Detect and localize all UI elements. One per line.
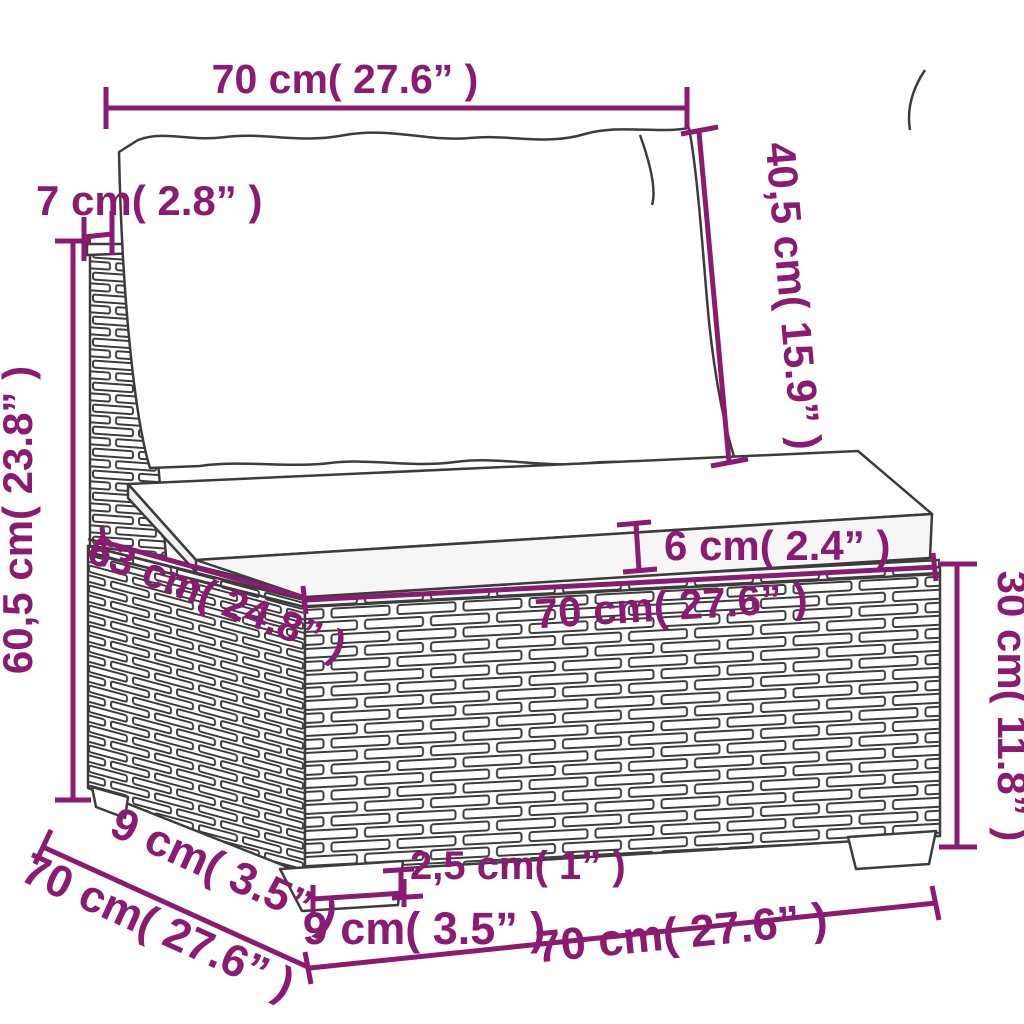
dimension-line xyxy=(636,524,639,570)
dimension-label: 2,5 cm( 1” ) xyxy=(410,844,626,888)
dimension-tick xyxy=(617,522,651,525)
dimension-label: 7 cm( 2.8” ) xyxy=(36,177,262,224)
leg-front-right xyxy=(848,831,936,869)
dimension-tick xyxy=(932,886,939,920)
dimension-label: 60,5 cm( 23.8” ) xyxy=(0,366,41,674)
dim-leg-height: 2,5 cm( 1” ) xyxy=(383,844,626,899)
dim-total-height: 60,5 cm( 23.8” ) xyxy=(0,241,91,800)
sofa-dimension-illustration: 70 cm( 27.6” ) 40,5 cm( 15.9” ) 7 cm( 2.… xyxy=(0,0,1024,1024)
dimension-label: 40,5 cm( 15.9” ) xyxy=(757,140,831,451)
dimension-tick xyxy=(392,896,423,898)
dimension-diagram: 70 cm( 27.6” ) 40,5 cm( 15.9” ) 7 cm( 2.… xyxy=(0,0,1024,1024)
dimension-tick xyxy=(303,586,306,614)
dimension-label: 70 cm( 27.6” ) xyxy=(533,893,829,973)
dimension-tick xyxy=(623,569,657,572)
dim-base-height: 30 cm( 11.8” ) xyxy=(938,564,1024,847)
dim-back-width: 70 cm( 27.6” ) xyxy=(106,56,687,129)
dimension-label: 6 cm( 2.4” ) xyxy=(664,522,890,569)
dimension-label: 30 cm( 11.8” ) xyxy=(989,571,1024,842)
dimension-label: 70 cm( 27.6” ) xyxy=(212,56,479,102)
dimension-line xyxy=(84,234,112,237)
dimension-tick xyxy=(933,553,936,581)
